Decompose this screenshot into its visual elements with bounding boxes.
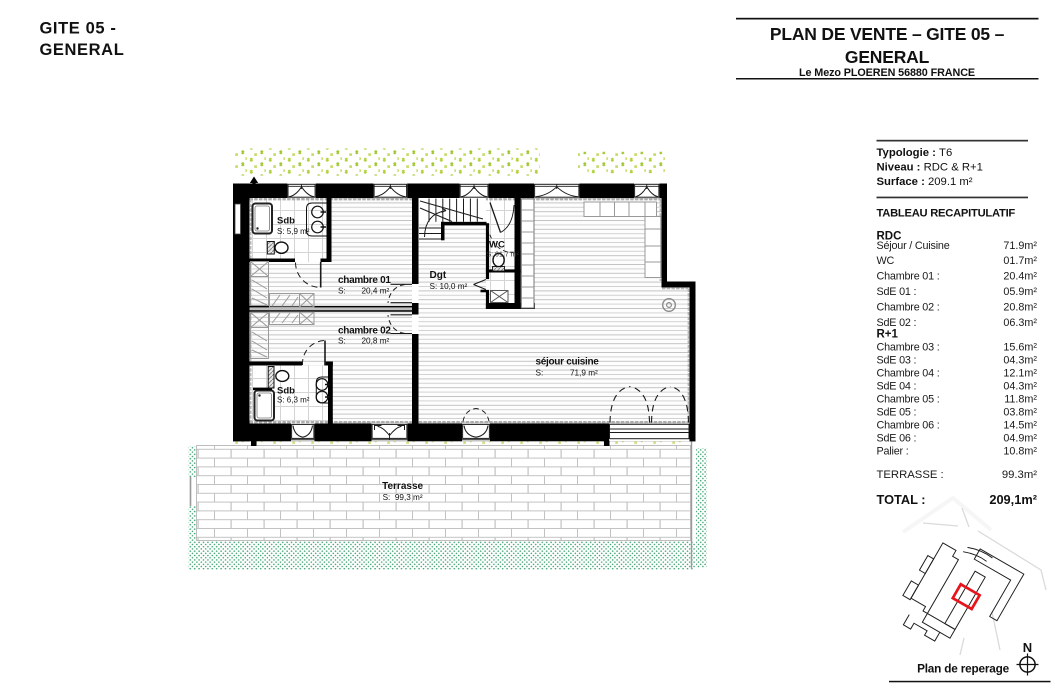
svg-text:séjour cuisine: séjour cuisine <box>536 357 600 368</box>
svg-text:S:: S: <box>338 337 346 346</box>
svg-text:chambre 01: chambre 01 <box>338 275 391 286</box>
svg-text:TOTAL :: TOTAL : <box>877 492 926 507</box>
svg-text:Surface : 209.1 m²: Surface : 209.1 m² <box>877 176 973 188</box>
svg-text:Chambre 03 :: Chambre 03 : <box>877 341 940 353</box>
svg-text:S:: S: <box>536 368 544 377</box>
svg-text:S: 6,3 m²: S: 6,3 m² <box>277 396 310 405</box>
svg-text:GITE 05 -: GITE 05 - <box>40 20 117 38</box>
svg-text:SdE 03 :: SdE 03 : <box>877 354 917 366</box>
svg-text:12.1m²: 12.1m² <box>1003 367 1037 379</box>
svg-text:Chambre 06 :: Chambre 06 : <box>877 420 940 432</box>
svg-text:PLAN DE VENTE – GITE 05 –: PLAN DE VENTE – GITE 05 – <box>770 24 1005 44</box>
svg-text:Terrasse: Terrasse <box>382 481 423 492</box>
svg-text:06.3m²: 06.3m² <box>1003 317 1037 329</box>
svg-text:S: 5,9 m²: S: 5,9 m² <box>277 227 310 236</box>
svg-text:SdE 02 :: SdE 02 : <box>877 317 917 329</box>
svg-text:S: 10,0 m²: S: 10,0 m² <box>430 282 468 291</box>
svg-text:04.3m²: 04.3m² <box>1003 381 1037 393</box>
svg-text:Chambre 05 :: Chambre 05 : <box>877 394 940 406</box>
svg-text:99.3m²: 99.3m² <box>1002 469 1037 481</box>
svg-text:71.9m²: 71.9m² <box>1003 240 1037 252</box>
svg-text:WC: WC <box>877 255 895 267</box>
svg-text:20,8 m²: 20,8 m² <box>362 337 390 346</box>
svg-text:03.8m²: 03.8m² <box>1003 407 1037 419</box>
svg-text:chambre 02: chambre 02 <box>338 326 391 337</box>
svg-text:11.8m²: 11.8m² <box>1004 394 1037 406</box>
svg-text:10.8m²: 10.8m² <box>1003 446 1037 458</box>
svg-text:Palier :: Palier : <box>877 446 909 458</box>
svg-text:20.8m²: 20.8m² <box>1003 302 1037 314</box>
svg-text:Chambre 04 :: Chambre 04 : <box>877 367 940 379</box>
svg-text:Plan de reperage: Plan de reperage <box>917 662 1010 676</box>
svg-text:GENERAL: GENERAL <box>845 47 930 67</box>
svg-text:05.9m²: 05.9m² <box>1003 286 1037 298</box>
svg-text:20,4 m²: 20,4 m² <box>362 287 390 296</box>
svg-text:SdE 06 :: SdE 06 : <box>877 433 917 445</box>
svg-text:04.9m²: 04.9m² <box>1003 433 1037 445</box>
svg-text:15.6m²: 15.6m² <box>1003 341 1037 353</box>
svg-text:Typologie : T6: Typologie : T6 <box>877 147 953 159</box>
svg-text:N: N <box>1023 640 1032 655</box>
svg-text:209,1m²: 209,1m² <box>989 492 1037 507</box>
svg-text:R+1: R+1 <box>877 328 899 340</box>
svg-text:SdE 01 :: SdE 01 : <box>877 286 917 298</box>
svg-text:Sdb: Sdb <box>277 216 295 227</box>
svg-text:Séjour / Cuisine: Séjour / Cuisine <box>877 240 950 252</box>
svg-text:Chambre 02 :: Chambre 02 : <box>877 302 940 314</box>
svg-text:SdE 04 :: SdE 04 : <box>877 381 917 393</box>
svg-text:Le Mezo PLOEREN 56880 FRANCE: Le Mezo PLOEREN 56880 FRANCE <box>799 67 975 79</box>
svg-text:01.7m²: 01.7m² <box>1003 255 1037 267</box>
svg-text:Niveau : RDC & R+1: Niveau : RDC & R+1 <box>877 162 983 174</box>
svg-text:71,9 m²: 71,9 m² <box>570 368 598 377</box>
svg-text:S:: S: <box>338 287 346 296</box>
svg-text:Dgt: Dgt <box>430 270 447 281</box>
svg-text:WC: WC <box>489 240 505 251</box>
svg-text:TABLEAU RECAPITULATIF: TABLEAU RECAPITULATIF <box>877 208 1016 220</box>
svg-text:Chambre 01 :: Chambre 01 : <box>877 271 940 283</box>
svg-text:14.5m²: 14.5m² <box>1003 420 1037 432</box>
svg-text:S: 01,7 m²: S: 01,7 m² <box>487 252 520 259</box>
svg-text:TERRASSE :: TERRASSE : <box>877 469 944 481</box>
svg-text:S: 99,3 m²: S: 99,3 m² <box>383 493 423 502</box>
svg-text:04.3m²: 04.3m² <box>1003 354 1037 366</box>
svg-text:SdE 05 :: SdE 05 : <box>877 407 917 419</box>
svg-text:20.4m²: 20.4m² <box>1003 271 1037 283</box>
svg-text:GENERAL: GENERAL <box>40 41 125 59</box>
